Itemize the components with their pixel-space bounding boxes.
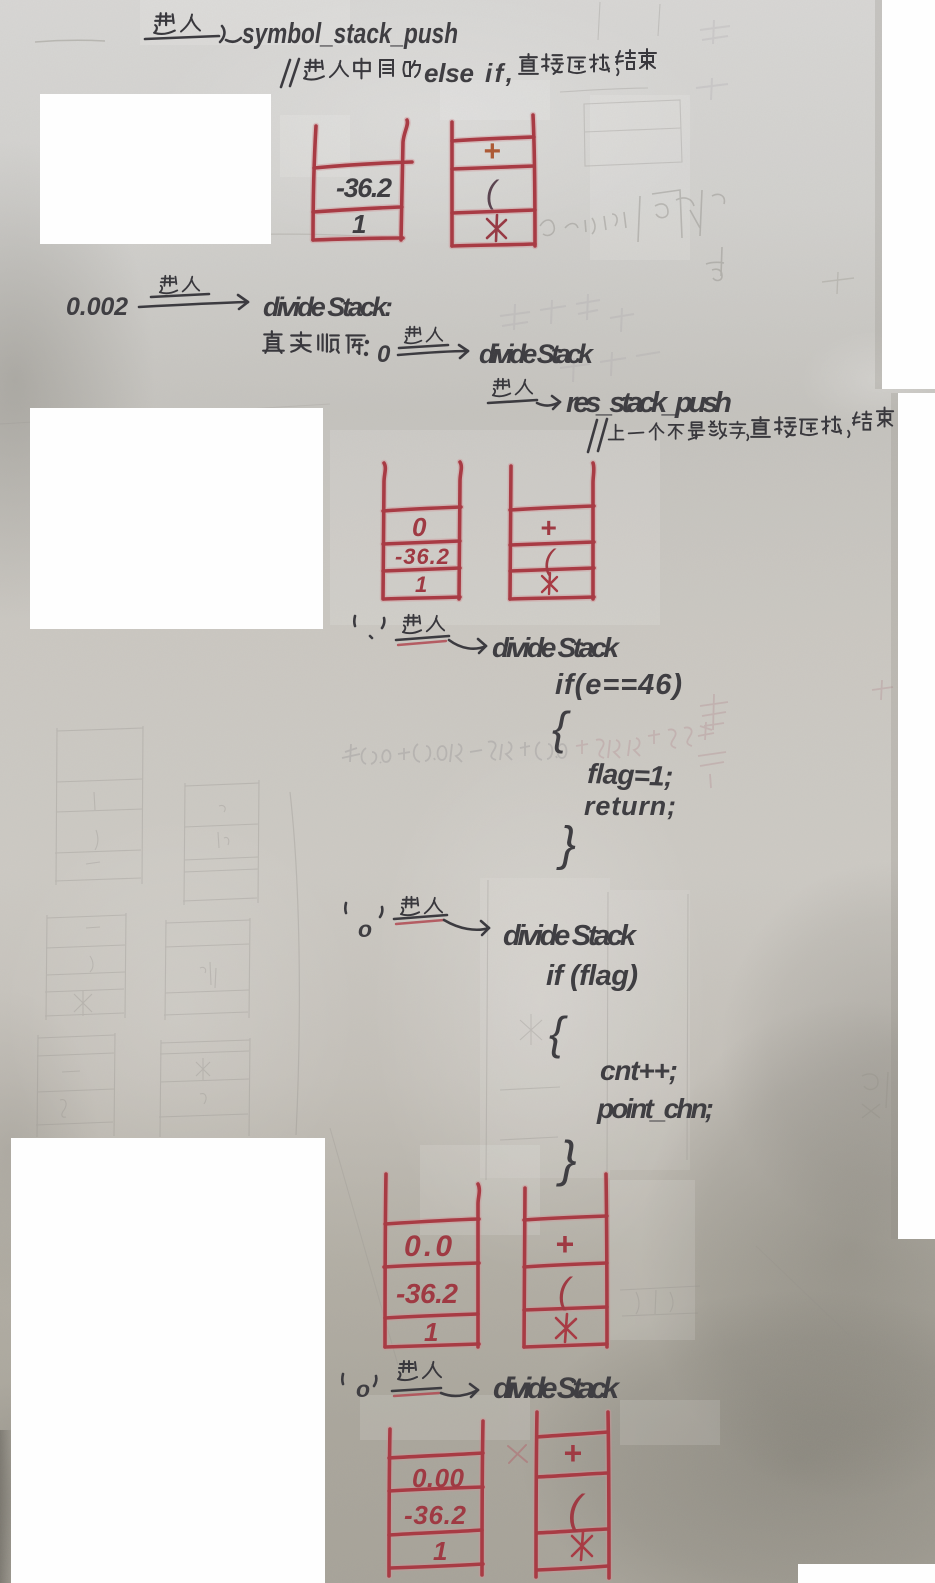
svg-text:0.00: 0.00 [412, 1463, 465, 1493]
svg-text:-36.2: -36.2 [395, 544, 450, 569]
svg-text:divide Stack: divide Stack [479, 339, 595, 369]
svg-text:-36.2: -36.2 [396, 1278, 458, 1309]
svg-text:if(e==46): if(e==46) [555, 669, 682, 701]
svg-text:1: 1 [352, 209, 366, 239]
svg-text:-36.2: -36.2 [336, 173, 392, 203]
svg-text:return;: return; [584, 791, 676, 821]
svg-text:divide Stack: divide Stack [492, 632, 620, 663]
svg-text:res_stack_push: res_stack_push [566, 387, 732, 419]
svg-text:}: } [556, 1131, 577, 1187]
svg-text:symbol_stack_push: symbol_stack_push [242, 18, 458, 50]
svg-text:else: else [424, 58, 474, 88]
svg-text:if,: if, [485, 58, 513, 88]
svg-text:+: + [540, 512, 556, 543]
svg-text:+: + [483, 135, 501, 168]
svg-text:o: o [358, 916, 372, 942]
svg-text:1: 1 [415, 572, 427, 597]
svg-text:-36.2: -36.2 [404, 1500, 467, 1530]
svg-text:if (flag): if (flag) [546, 960, 638, 992]
svg-text:+: + [555, 1226, 574, 1262]
svg-text:0.0: 0.0 [404, 1230, 452, 1263]
svg-text:cnt++;: cnt++; [600, 1055, 678, 1086]
svg-text:divide Stack: divide Stack [493, 1372, 620, 1405]
svg-text:0.002: 0.002 [66, 293, 128, 321]
svg-text:0: 0 [412, 512, 427, 542]
svg-text:divide Stack: divide Stack [503, 920, 638, 952]
svg-text:+: + [563, 1435, 582, 1471]
svg-text:1: 1 [424, 1317, 438, 1347]
svg-text:1: 1 [433, 1536, 447, 1566]
svg-text:point_chn;: point_chn; [596, 1093, 714, 1124]
svg-text:divide Stack:: divide Stack: [263, 292, 393, 322]
svg-text:o: o [356, 1376, 370, 1402]
svg-text:flag=1;: flag=1; [587, 758, 674, 792]
svg-text:0: 0 [377, 341, 391, 368]
